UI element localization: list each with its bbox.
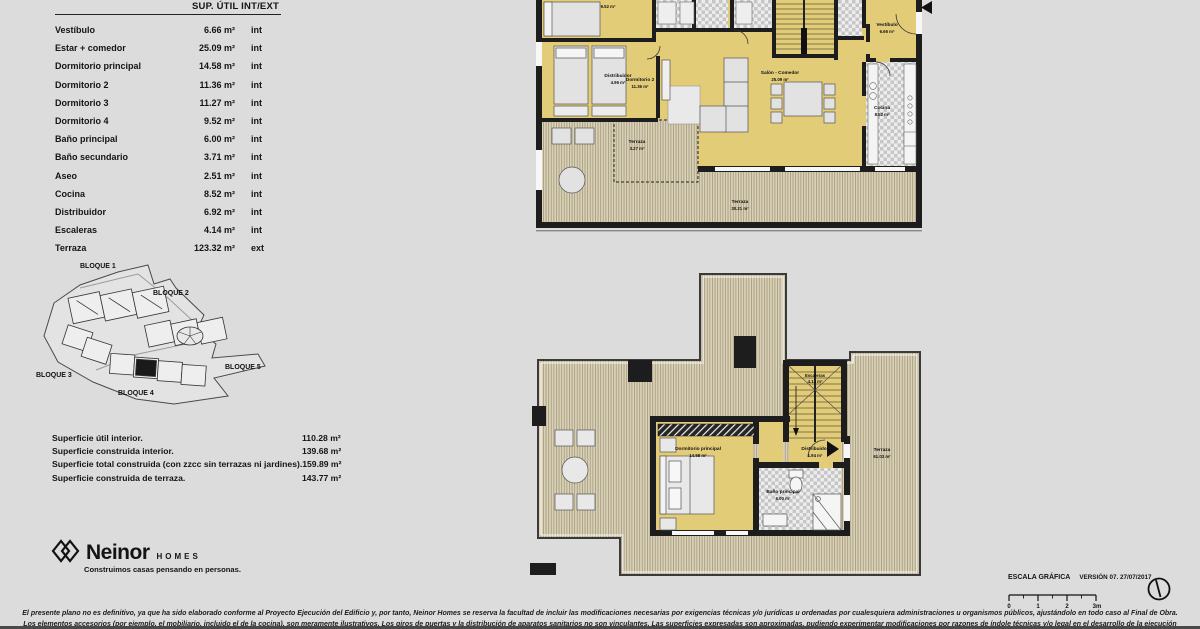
terrace-chair [555,430,573,446]
sofa [724,58,748,132]
terrace-table [559,167,585,193]
room-area-label: 25.09 m² [771,77,789,82]
room-name-label: Dormitorio principal [675,446,721,452]
room-type: int [251,98,281,108]
neinor-logo-icon [50,538,80,564]
summary-value: 143.77 m² [302,472,354,485]
summary-label: Superficie construida interior. [52,445,302,458]
lower-floor-plan: Escaleras 4.14 m² Dormitorio principal 1… [530,268,930,580]
railing-line [536,230,922,231]
summary-value: 139.68 m² [302,445,354,458]
room-label: Dormitorio 2 [55,80,175,90]
brand-word: HOMES [157,552,201,561]
upper-floor-plan: 9.52 m² Distribuidor 4.96 m² Vestíbulo 6… [530,0,930,240]
room-area: 6.92 m² [175,207,235,217]
room-area-label: 14.58 m² [689,453,707,458]
version-label: VERSIÓN 07. 27/07/2017 [1079,574,1151,581]
table-row: Baño principal6.00 m²int [55,130,281,148]
room-label: Distribuidor [55,207,175,217]
room-name-label: Terraza [732,199,749,205]
summary-label: Superficie construida de terraza. [52,472,302,485]
dining-table [784,82,822,116]
room-area-label: 6.66 m² [880,29,895,34]
terrace-chair [575,128,594,144]
surface-table: SUP. ÚTIL INT/EXT Vestíbulo6.66 m²int Es… [55,1,281,257]
bloque-label: BLOQUE 4 [118,390,154,397]
brand-name: Neinor [86,542,150,564]
utility-floor [838,0,862,36]
room-name-label: Terraza [874,447,891,453]
bed [660,456,714,514]
room-area-label: 3.27 m² [630,146,645,151]
table-row: Dormitorio principal14.58 m²int [55,57,281,75]
room-name-label: Vestíbulo [876,22,897,28]
bloque-label: BLOQUE 5 [225,364,261,371]
room-type: int [251,80,281,90]
scale-bar: 0 1 2 3m [1008,592,1108,610]
room-area-label: 4.96 m² [611,80,626,85]
bloque-label: BLOQUE 3 [36,372,72,379]
table-row: Escaleras4.14 m²int [55,221,281,239]
site-plan: BLOQUE 1 BLOQUE 2 BLOQUE 3 BLOQUE 4 BLOQ… [18,258,290,423]
room-type: int [251,171,281,181]
room-area: 6.00 m² [175,134,235,144]
terrace-chair [577,494,595,510]
room-type: int [251,25,281,35]
room-label: Escaleras [55,225,175,235]
armchair [700,106,726,132]
room-type: int [251,225,281,235]
room-area: 11.27 m² [175,98,235,108]
room-area-label: 1.94 m² [808,453,823,458]
room-area: 3.71 m² [175,152,235,162]
entrance-arrow [921,1,932,14]
room-type: int [251,134,281,144]
hall-floor [759,422,783,468]
room-area-label: 9.52 m² [601,4,616,9]
room-label: Cocina [55,189,175,199]
summary-row: Superficie total construida (con zzcc si… [52,458,354,471]
room-type: int [251,152,281,162]
surface-summary: Superficie útil interior.110.28 m² Super… [52,432,354,485]
nightstand [660,518,676,530]
room-label: Terraza [55,243,175,253]
tv-unit [662,60,670,100]
room-area: 8.52 m² [175,189,235,199]
room-name-label: Baño principal [766,489,799,495]
summary-value: 110.28 m² [302,432,354,445]
terrace-chair [577,430,595,446]
bloque-label: BLOQUE 1 [80,263,116,270]
room-type: int [251,116,281,126]
terrace-table [562,457,588,483]
table-row: Aseo2.51 m²int [55,167,281,185]
table-row: Vestíbulo6.66 m²int [55,21,281,39]
room-area-label: 8.52 m² [875,112,890,117]
room-label: Dormitorio principal [55,61,175,71]
room-area: 4.14 m² [175,225,235,235]
brand-tagline: Construimos casas pensando en personas. [84,565,241,574]
table-row: Distribuidor6.92 m²int [55,203,281,221]
room-name-label: Dormitorio 2 [626,77,655,83]
room-area-label: 11.36 m² [632,84,650,89]
room-type: ext [251,243,281,253]
room-label: Dormitorio 4 [55,116,175,126]
room-name-label: Terraza [629,139,646,145]
north-arrow-icon [1146,576,1172,602]
room-area: 11.36 m² [175,80,235,90]
highlighted-block [135,359,156,376]
room-type: int [251,189,281,199]
room-area: 2.51 m² [175,171,235,181]
terrace-chair [552,128,571,144]
table-row: Dormitorio 49.52 m²int [55,112,281,130]
room-name-label: Salón - Comedor [761,70,800,76]
room-label: Aseo [55,171,175,181]
scale-block: ESCALA GRÁFICA VERSIÓN 07. 27/07/2017 0 … [1008,574,1158,599]
room-type: int [251,43,281,53]
room-area: 6.66 m² [175,25,235,35]
terrace-chair [555,494,573,510]
table-row: Baño secundario3.71 m²int [55,148,281,166]
room-area-label: 61.03 m² [873,454,891,459]
room-label: Vestíbulo [55,25,175,35]
scale-title: ESCALA GRÁFICA [1008,574,1070,581]
site-roundabout [177,327,203,345]
table-row: Dormitorio 311.27 m²int [55,94,281,112]
room-area-label: 6.00 m² [776,496,791,501]
wardrobe [658,424,754,436]
legal-line-1: El presente plano no es definitivo, ya q… [20,609,1180,620]
nightstand [660,438,676,452]
surface-table-header: SUP. ÚTIL INT/EXT [55,1,281,12]
summary-row: Superficie construida de terraza.143.77 … [52,472,354,485]
summary-row: Superficie construida interior.139.68 m² [52,445,354,458]
room-area: 14.58 m² [175,61,235,71]
room-label: Estar + comedor [55,43,175,53]
room-area: 123.32 m² [175,243,235,253]
summary-row: Superficie útil interior.110.28 m² [52,432,354,445]
table-row: Estar + comedor25.09 m²int [55,39,281,57]
room-type: int [251,207,281,217]
room-area: 25.09 m² [175,43,235,53]
rug [668,86,700,124]
room-label: Dormitorio 3 [55,98,175,108]
room-type: int [251,61,281,71]
summary-label: Superficie útil interior. [52,432,302,445]
table-row: Cocina8.52 m²int [55,185,281,203]
room-name-label: Distribuidor [801,446,828,452]
bed [544,2,600,36]
bloque-label: BLOQUE 2 [153,290,189,297]
surface-table-rows: Vestíbulo6.66 m²int Estar + comedor25.09… [55,21,281,257]
plan-sheet: SUP. ÚTIL INT/EXT Vestíbulo6.66 m²int Es… [0,0,1200,629]
room-area: 9.52 m² [175,116,235,126]
room-name-label: Cocina [874,105,890,111]
room-area-label: 30.21 m² [731,206,749,211]
brand-block: Neinor HOMES Construimos casas pensando … [50,538,241,574]
room-label: Baño principal [55,134,175,144]
table-row: Dormitorio 211.36 m²int [55,76,281,94]
staircase [776,0,834,54]
room-name-label: Escaleras [805,373,826,378]
header-rule [55,14,281,15]
summary-value: 159.89 m² [302,458,354,471]
room-area-label: 4.14 m² [808,379,823,384]
summary-label: Superficie total construida (con zzcc si… [52,458,302,471]
table-row: Terraza123.32 m²ext [55,239,281,257]
room-label: Baño secundario [55,152,175,162]
